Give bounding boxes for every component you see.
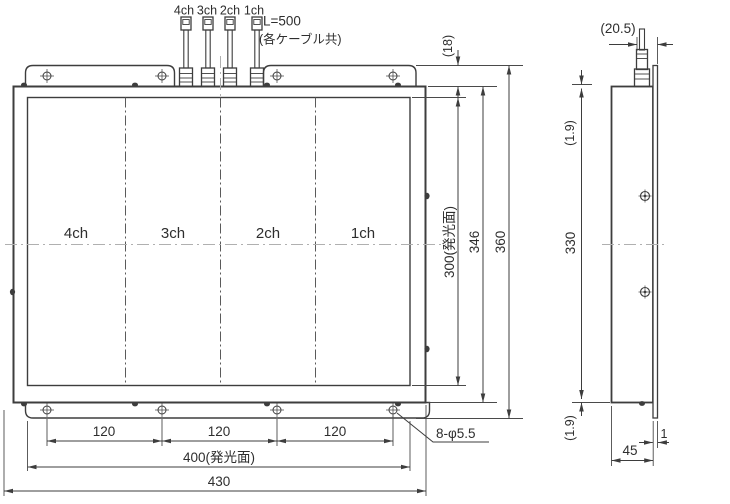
cable-2ch — [224, 17, 237, 87]
technical-drawing: 4ch 3ch 2ch 1ch L=500 (各ケーブル共) 4ch 3ch 2… — [0, 0, 730, 504]
dim-hole-span-label: 330 — [563, 232, 578, 255]
cable-channel-label: 1ch — [244, 4, 264, 18]
dim-overall-width-label: 430 — [208, 474, 231, 489]
dim-plate-offset-bottom-label: (1.9) — [563, 415, 577, 441]
cable-4ch — [180, 17, 193, 87]
panel-channel-label: 2ch — [256, 225, 280, 242]
mounting-bracket-bottom — [26, 403, 430, 419]
side-bottom-screw — [639, 401, 645, 406]
edge-screw-right-upper — [424, 193, 429, 199]
edge-screw-left — [10, 289, 15, 295]
cables-front — [180, 17, 264, 87]
cable-channel-label: 4ch — [174, 4, 194, 18]
dim-body-height-label: 346 — [467, 231, 482, 254]
dim-emitting-height-label: 300(発光面) — [442, 206, 457, 278]
cable-length-note-2: (各ケーブル共) — [259, 32, 342, 47]
dim-connector-offset-label: (20.5) — [600, 21, 635, 36]
drawing-canvas: 4ch 3ch 2ch 1ch L=500 (各ケーブル共) 4ch 3ch 2… — [0, 0, 730, 504]
cable-length-note: L=500 — [263, 14, 301, 29]
cable-1ch — [251, 17, 264, 87]
dim-mounting-holes-label: 8-φ5.5 — [436, 426, 476, 441]
cable-channel-label: 2ch — [220, 4, 240, 18]
dim-bracket-offset-label: (18) — [441, 35, 455, 57]
panel-channel-label: 4ch — [64, 225, 88, 242]
panel-channel-label: 3ch — [161, 225, 185, 242]
mounting-plate-edge — [653, 66, 658, 419]
dim-plate-offset-top-label: (1.9) — [563, 120, 577, 146]
edge-screw-right-lower — [424, 346, 429, 352]
dim-depth-label: 45 — [622, 443, 637, 458]
panel-channel-label: 1ch — [351, 225, 375, 242]
dim-hole-pitch-label: 120 — [93, 424, 116, 439]
front-dimensions-vertical: (18) 300(発光面) 346 360 — [412, 35, 523, 419]
dim-plate-thickness-label: 1 — [661, 427, 668, 441]
dim-hole-pitch-label: 120 — [324, 424, 347, 439]
cable-channel-label: 3ch — [197, 4, 217, 18]
cable-3ch — [202, 17, 215, 87]
dim-emitting-width-label: 400(発光面) — [183, 450, 255, 465]
side-view — [602, 29, 668, 418]
dim-hole-pitch-label: 120 — [208, 424, 231, 439]
dim-overall-height-label: 360 — [493, 231, 508, 254]
front-view: 4ch 3ch 2ch 1ch L=500 (各ケーブル共) 4ch 3ch 2… — [5, 4, 446, 419]
